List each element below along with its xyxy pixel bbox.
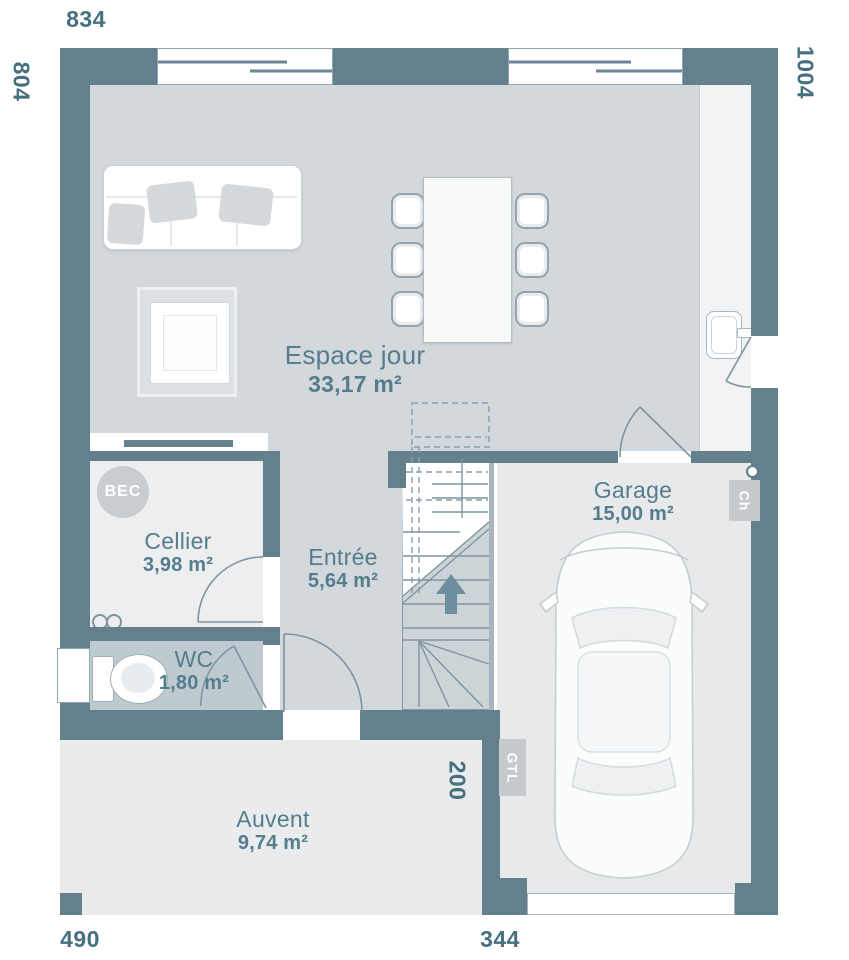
entree-floor: [280, 451, 402, 710]
cellier-high-window-sash: [124, 440, 233, 447]
garage-top-wall-right: [691, 451, 778, 463]
cellier-door-opening: [263, 557, 280, 627]
sink-basin: [711, 316, 737, 354]
garage-bottom-wall-right: [735, 883, 778, 915]
dining-chair: [391, 193, 425, 229]
garage-top-wall-left: [388, 451, 618, 463]
garage-bottom-wall-left: [482, 878, 527, 915]
wc-window: [57, 648, 90, 703]
auvent-floor: [60, 740, 482, 915]
sofa-chaise-pillow: [107, 203, 146, 245]
coffee-table-top: [163, 315, 217, 371]
dimension-garage-setback: 200: [444, 753, 471, 809]
dining-chair: [515, 242, 549, 278]
gtl-label: GTL: [505, 752, 521, 783]
boiler-point-icon: [746, 465, 759, 478]
cellier-top-wall: [90, 451, 270, 461]
dining-chair: [391, 242, 425, 278]
dimension-top: 834: [58, 6, 114, 33]
dimension-bottom-left: 490: [52, 926, 108, 953]
ch-marker: Ch: [729, 480, 760, 521]
dimension-left: 804: [8, 54, 35, 110]
cellier-right-wall: [263, 451, 280, 557]
sofa-pillow: [218, 183, 274, 226]
dining-chair: [515, 193, 549, 229]
bec-marker: BEC: [97, 466, 149, 518]
floor-plan: BEC Ch GTL Espace jour 33,17 m² Cellier …: [0, 0, 849, 960]
ch-label: Ch: [736, 490, 752, 511]
dining-chair: [391, 291, 425, 327]
kitchen-strip-floor: [699, 85, 752, 451]
sliding-window: [508, 48, 683, 85]
cellier-wc-divider-wall: [60, 627, 280, 641]
front-door-opening: [283, 710, 360, 740]
dimension-bottom-right: 344: [472, 926, 528, 953]
garage-stair-partition: [489, 463, 494, 710]
wc-right-wall: [263, 627, 280, 645]
garage-floor: [497, 463, 751, 893]
front-wall: [60, 710, 500, 740]
dining-chair: [515, 291, 549, 327]
gtl-marker: GTL: [499, 739, 526, 796]
sofa-pillow: [146, 180, 198, 224]
garage-vehicle-door: [527, 893, 735, 915]
dimension-right: 1004: [792, 41, 819, 105]
toilet-seat: [121, 663, 155, 693]
side-door-opening: [751, 336, 778, 388]
dining-table: [423, 177, 512, 343]
stair-wall-stub: [388, 451, 406, 488]
sliding-window: [157, 48, 333, 85]
garage-interior-door-opening: [618, 451, 691, 463]
auvent-post: [60, 893, 82, 915]
wc-door-opening: [263, 645, 280, 708]
